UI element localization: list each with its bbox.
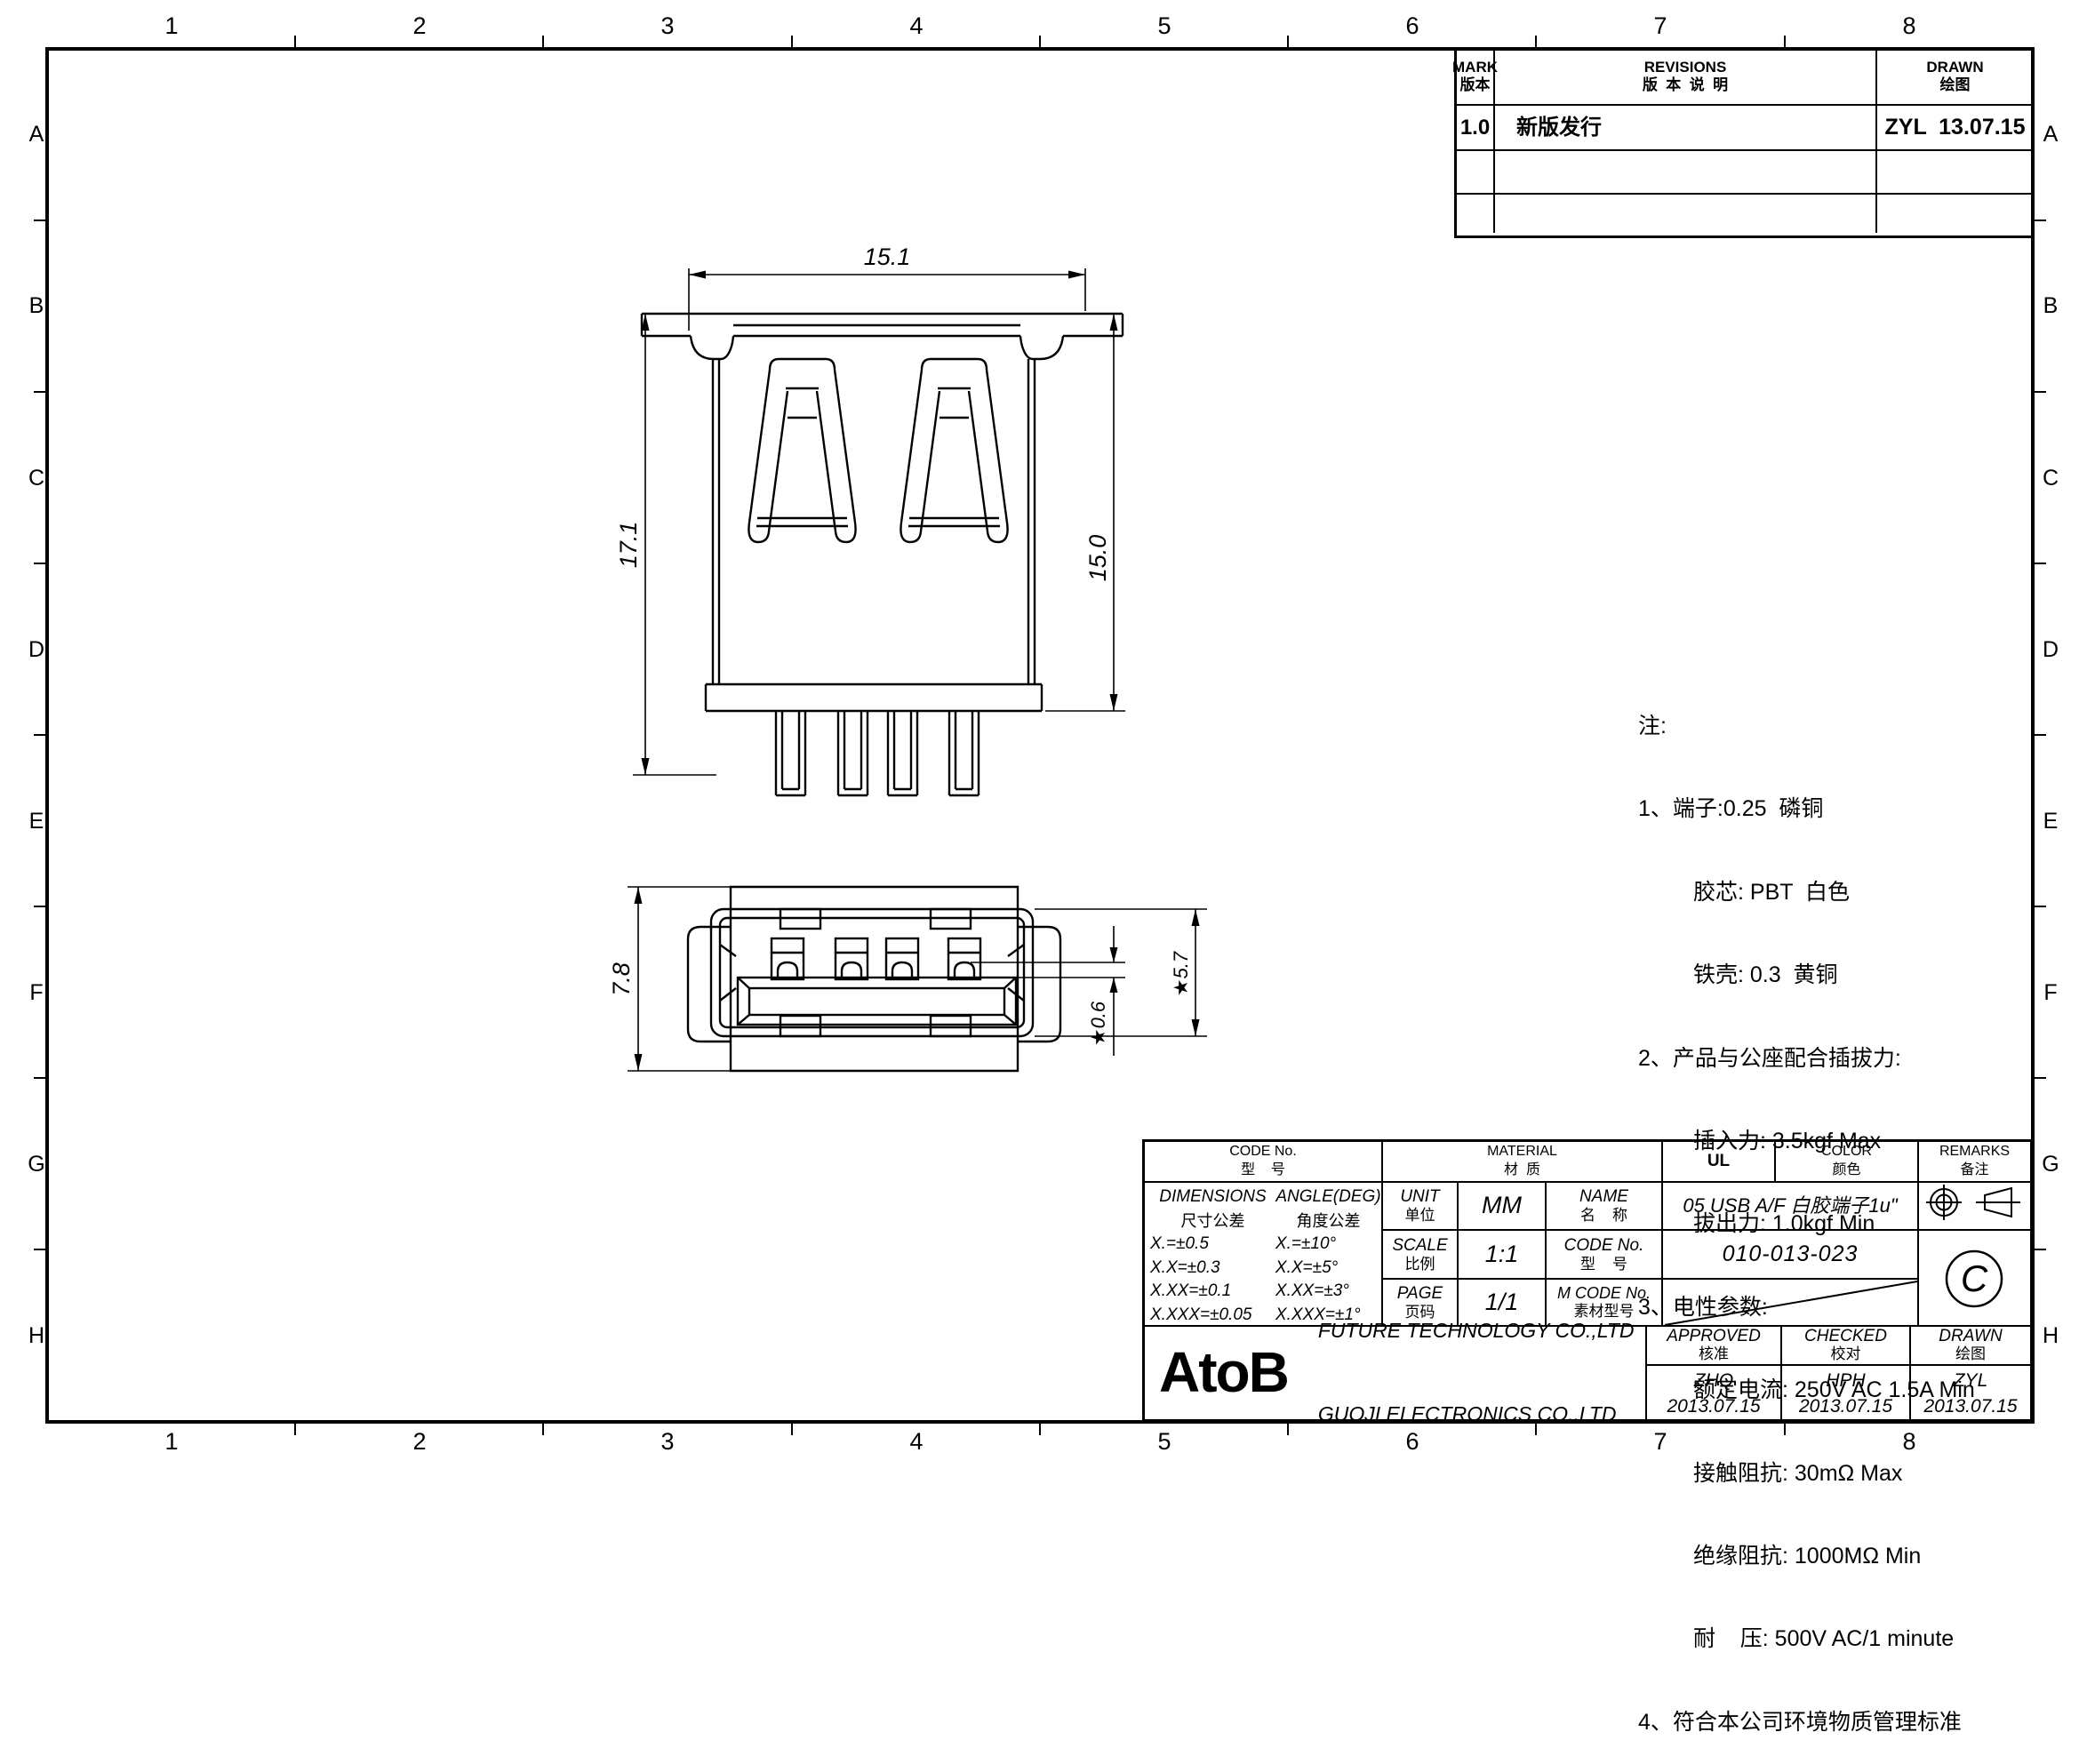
code-header-cn: 型 号	[1241, 1161, 1285, 1180]
color-header-cn: 颜色	[1832, 1161, 1860, 1180]
dim-label-height-7-8: 7.8	[608, 962, 635, 996]
approved-label-cn: 核准	[1699, 1346, 1729, 1363]
approved-date: 2013.07.15	[1667, 1396, 1760, 1417]
drawn-label-cn: 绘图	[1955, 1346, 1986, 1363]
face-view-tongue-inner	[749, 988, 1004, 1015]
face-view-body-and-tabs	[688, 887, 1060, 1071]
note-line: 2、产品与公座配合插拔力:	[1638, 1043, 2056, 1074]
zone-number-top-7: 7	[1643, 12, 1678, 39]
dimension-tolerances: DIMENSIONS 尺寸公差 X.=±0.5 X.X=±0.3 X.XX=±0…	[1145, 1185, 1275, 1327]
header-code-no: CODE No. 型 号	[1145, 1142, 1383, 1183]
unit-label: UNIT 单位	[1383, 1183, 1459, 1231]
dim-label-gap-0-6: ★0.6	[1087, 1001, 1109, 1046]
remarks-header-cn: 备注	[1960, 1161, 1988, 1180]
zone-letter-left-a: A	[23, 121, 50, 148]
approved-name: ZHQ	[1694, 1366, 1733, 1396]
projection-symbols	[1919, 1183, 2026, 1222]
face-view	[688, 887, 1060, 1071]
empty-cell-slash	[1663, 1280, 1919, 1327]
revision-empty-cell	[1457, 151, 1495, 195]
copyright-icon: C	[1919, 1231, 2030, 1327]
material-header-cn: 材 质	[1504, 1161, 1540, 1180]
mark-label-cn: 版本	[1460, 76, 1491, 94]
unit-label-en: UNIT	[1400, 1187, 1439, 1207]
revision-empty-cell	[1495, 195, 1877, 233]
name-label-en: NAME	[1579, 1187, 1628, 1207]
drawing-sheet: { "page": { "zone_numbers": ["1","2","3"…	[0, 0, 2079, 1470]
revision-empty-cell	[1877, 195, 2033, 233]
unit-label-cn: 单位	[1405, 1207, 1435, 1225]
drawn-label-cn: 绘图	[1940, 76, 1971, 94]
name-label-cn: 名 称	[1580, 1207, 1627, 1225]
zone-letter-left-f: F	[23, 979, 50, 1006]
zone-number-top-8: 8	[1891, 12, 1927, 39]
drawn-cell: DRAWN 绘图 ZYL 2013.07.15	[1911, 1327, 2030, 1419]
zone-number-bottom-3: 3	[650, 1428, 685, 1455]
revision-empty-cell	[1495, 151, 1877, 195]
zone-letter-left-b: B	[23, 292, 50, 319]
revisions-header-mark: MARK 版本	[1457, 49, 1495, 106]
revisions-label-en: REVISIONS	[1644, 59, 1727, 76]
dimensions-title: DIMENSIONS	[1150, 1185, 1275, 1209]
header-remarks: REMARKS 备注	[1919, 1142, 2030, 1183]
note-line: 1、端子:0.25 磷铜	[1638, 794, 2056, 825]
revision-empty-cell	[1877, 151, 2033, 195]
zone-number-top-3: 3	[650, 12, 685, 39]
copyright-mark: C	[1919, 1231, 2030, 1327]
zone-number-top-4: 4	[899, 12, 934, 39]
dim-label-height-15-0: 15.0	[1084, 535, 1111, 582]
tolerance-value: X.=±10°	[1275, 1233, 1381, 1257]
note-line: 胶芯: PBT 白色	[1638, 877, 2056, 908]
drawn-name: ZYL	[1954, 1366, 1988, 1396]
zone-number-bottom-5: 5	[1147, 1428, 1182, 1455]
face-view-latch-window-bottom-right	[931, 1016, 971, 1036]
note-line: 接触阻抗: 30mΩ Max	[1638, 1458, 2056, 1489]
company-cell: AtoB FUTURE TECHNOLOGY CO.,LTD GUOJI ELE…	[1145, 1327, 1647, 1419]
approved-label-en: APPROVED	[1667, 1328, 1761, 1346]
checked-date: 2013.07.15	[1799, 1396, 1892, 1417]
checked-name: HPH	[1826, 1366, 1865, 1396]
drawn-label-en: DRAWN	[1926, 59, 1983, 76]
color-header-en: COLOR	[1821, 1143, 1872, 1161]
tolerance-value: X.XXX=±0.05	[1150, 1304, 1275, 1328]
front-view-contact-right	[900, 359, 1007, 542]
face-view-latch-window-bottom-left	[780, 1016, 820, 1036]
projection-angle-icon	[1976, 1188, 2020, 1217]
mark-label-en: MARK	[1452, 59, 1498, 76]
revision-row-description: 新版发行	[1495, 106, 1877, 151]
face-view-contact-3	[886, 938, 918, 979]
dimensions-title-cn: 尺寸公差	[1150, 1209, 1275, 1233]
approved-cell: APPROVED 核准 ZHQ 2013.07.15	[1647, 1327, 1782, 1419]
code-value: 010-013-023	[1663, 1231, 1919, 1280]
tolerance-value: X.XX=±0.1	[1150, 1280, 1275, 1304]
unit-value: MM	[1459, 1183, 1547, 1231]
code-header-en: CODE No.	[1229, 1143, 1297, 1161]
company-names: FUTURE TECHNOLOGY CO.,LTD GUOJI ELECTRON…	[1318, 1267, 1635, 1479]
header-material: MATERIAL 材 质	[1383, 1142, 1663, 1183]
checked-header: CHECKED 校对	[1782, 1327, 1909, 1366]
note-line: 耐 压: 500V AC/1 minute	[1638, 1624, 2056, 1655]
face-view-contact-2	[836, 938, 868, 979]
zone-number-bottom-1: 1	[154, 1428, 189, 1455]
drawn-header: DRAWN 绘图	[1911, 1327, 2030, 1366]
revisions-label-cn: 版 本 说 明	[1643, 76, 1728, 94]
revision-row-mark: 1.0	[1457, 106, 1495, 151]
remarks-symbols	[1919, 1183, 2030, 1231]
zone-letter-left-d: D	[23, 636, 50, 663]
angle-title: ANGLE(DEG)	[1275, 1185, 1381, 1209]
checked-label-cn: 校对	[1831, 1346, 1861, 1363]
zone-number-top-2: 2	[402, 12, 437, 39]
zone-number-top-1: 1	[154, 12, 189, 39]
zone-number-top-6: 6	[1395, 12, 1430, 39]
zone-letter-right-b: B	[2037, 292, 2064, 319]
front-view-shell-body	[642, 314, 1123, 711]
zone-number-bottom-2: 2	[402, 1428, 437, 1455]
zone-number-top-5: 5	[1147, 12, 1182, 39]
header-color: COLOR 颜色	[1776, 1142, 1919, 1183]
zone-letter-left-c: C	[23, 465, 50, 491]
company-logo: AtoB	[1159, 1340, 1288, 1406]
material-header-en: MATERIAL	[1487, 1143, 1557, 1161]
note-line: 绝缘阻抗: 1000MΩ Min	[1638, 1541, 2056, 1572]
face-view-shell-outer	[711, 909, 1033, 1036]
zone-letter-left-e: E	[23, 808, 50, 834]
angle-title-cn: 角度公差	[1275, 1209, 1381, 1233]
note-line: 铁壳: 0.3 黄铜	[1638, 960, 2056, 991]
zone-number-bottom-4: 4	[899, 1428, 934, 1455]
checked-label-en: CHECKED	[1804, 1328, 1887, 1346]
name-label: NAME 名 称	[1547, 1183, 1663, 1231]
note-line: 4、符合本公司环境物质管理标准	[1638, 1707, 2056, 1738]
dim-label-opening-5-7: ★5.7	[1170, 951, 1192, 996]
revisions-table: MARK 版本 REVISIONS 版 本 说 明 DRAWN 绘图 1.0 新…	[1454, 49, 2033, 238]
revisions-header-description: REVISIONS 版 本 说 明	[1495, 49, 1877, 106]
zone-letter-left-h: H	[23, 1322, 50, 1349]
checked-cell: CHECKED 校对 HPH 2013.07.15	[1782, 1327, 1911, 1419]
company-line-1: FUTURE TECHNOLOGY CO.,LTD	[1318, 1320, 1635, 1342]
dim-label-width-15-1: 15.1	[864, 243, 911, 270]
front-view	[642, 314, 1123, 795]
revision-row-drawn: ZYL 13.07.15	[1877, 106, 2033, 151]
scale-label-en: SCALE	[1392, 1236, 1447, 1256]
mcode-value	[1663, 1280, 1919, 1327]
name-value: 05 USB A/F 白胶端子1u"	[1663, 1183, 1919, 1231]
face-view-shell-inner	[720, 918, 1024, 1027]
revisions-header-drawn: DRAWN 绘图	[1877, 49, 2033, 106]
remarks-header-en: REMARKS	[1939, 1143, 2010, 1161]
face-view-contact-1	[772, 938, 804, 979]
tolerance-value: X.X=±0.3	[1150, 1257, 1275, 1281]
zone-letter-left-g: G	[23, 1151, 50, 1177]
drawn-date: 2013.07.15	[1923, 1396, 2017, 1417]
note-line: 注:	[1638, 711, 2056, 742]
code-label-en: CODE No.	[1564, 1236, 1644, 1256]
approved-header: APPROVED 核准	[1647, 1327, 1780, 1366]
face-view-contact-4	[948, 938, 980, 979]
front-view-pins	[776, 711, 979, 795]
dim-label-height-17-1: 17.1	[615, 522, 642, 569]
tolerance-value: X.=±0.5	[1150, 1233, 1275, 1257]
copyright-letter: C	[1961, 1257, 1988, 1299]
drawn-label-en: DRAWN	[1939, 1328, 2002, 1346]
revision-empty-cell	[1457, 195, 1495, 233]
front-view-contact-left	[748, 359, 855, 542]
title-block: CODE No. 型 号 MATERIAL 材 质 UL COLOR 颜色 RE…	[1142, 1139, 2033, 1422]
zone-letter-right-a: A	[2037, 121, 2064, 148]
header-ul: UL	[1663, 1142, 1776, 1183]
zone-letter-right-c: C	[2037, 465, 2064, 491]
company-line-2: GUOJI ELECTRONICS CO.,LTD	[1318, 1403, 1635, 1425]
